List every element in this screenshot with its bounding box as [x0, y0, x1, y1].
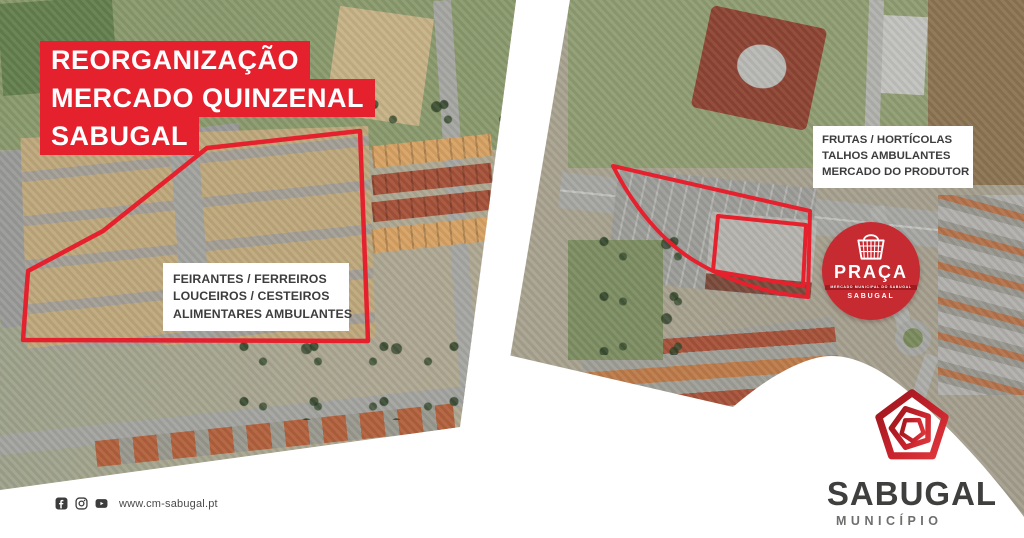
footer-social-bar: www.cm-sabugal.pt	[55, 497, 218, 510]
title-line-2: MERCADO QUINZENAL	[40, 79, 375, 117]
shopping-basket-icon	[851, 231, 891, 261]
title-line-3: SABUGAL	[40, 117, 199, 155]
title-banner: REORGANIZAÇÃO MERCADO QUINZENAL SABUGAL	[40, 41, 375, 155]
right-zone-label: FRUTAS / HORTÍCOLAS TALHOS AMBULANTES ME…	[813, 126, 973, 188]
praca-badge-ribbon: MERCADO MUNICIPAL DO SABUGAL	[825, 285, 916, 290]
pentagon-spiral-icon	[872, 388, 952, 470]
poster-canvas: REORGANIZAÇÃO MERCADO QUINZENAL SABUGAL …	[0, 0, 1024, 538]
left-zone-label-line: ALIMENTARES AMBULANTES	[173, 306, 339, 323]
left-zone-label-line: LOUCEIROS / CESTEIROS	[173, 288, 339, 305]
facebook-icon	[55, 497, 68, 510]
title-line-1: REORGANIZAÇÃO	[40, 41, 310, 79]
municipality-name: SABUGAL	[812, 477, 1012, 510]
right-large-zone-outline	[613, 166, 810, 297]
instagram-icon	[75, 497, 88, 510]
right-zone-label-line: FRUTAS / HORTÍCOLAS	[822, 133, 964, 149]
left-zone-label: FEIRANTES / FERREIROS LOUCEIROS / CESTEI…	[163, 263, 349, 331]
municipality-subtitle: MUNICÍPIO	[812, 514, 1012, 528]
praca-market-badge: PRAÇA MERCADO MUNICIPAL DO SABUGAL SABUG…	[822, 222, 920, 320]
sabugal-municipality-logo: SABUGAL MUNICÍPIO	[812, 388, 1012, 528]
praca-badge-subtitle: SABUGAL	[847, 293, 894, 300]
left-zone-label-line: FEIRANTES / FERREIROS	[173, 271, 339, 288]
right-zone-label-line: TALHOS AMBULANTES	[822, 149, 964, 165]
praca-badge-title: PRAÇA	[834, 263, 908, 281]
right-zone-label-line: MERCADO DO PRODUTOR	[822, 165, 964, 181]
website-url: www.cm-sabugal.pt	[119, 498, 218, 510]
youtube-icon	[95, 497, 108, 510]
